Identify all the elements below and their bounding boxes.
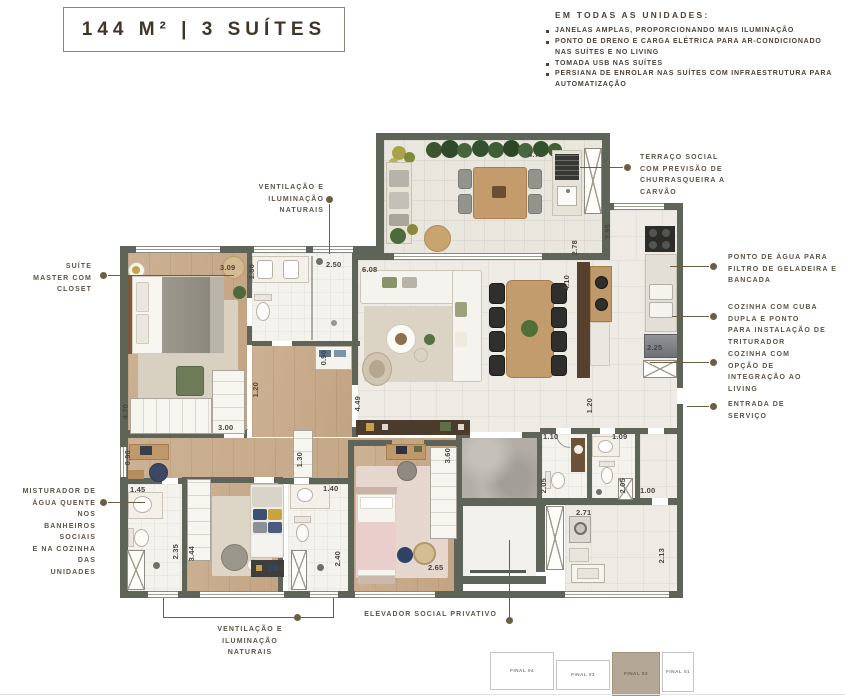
pillow (360, 497, 393, 509)
dimension-label: 2.13 (658, 548, 666, 563)
dimension-label: 2.50 (326, 261, 341, 269)
cabinet (569, 548, 589, 562)
dimension-label: 2.05 (619, 478, 627, 493)
page-baseline (0, 694, 845, 695)
plant-icon (424, 334, 435, 345)
desk-chair (149, 463, 168, 482)
window (200, 591, 284, 598)
pouf (413, 542, 436, 565)
mattress (252, 535, 282, 556)
wall (424, 440, 456, 446)
leader-line (108, 502, 145, 503)
dimension-label: 3.95 (604, 224, 612, 239)
window (310, 591, 338, 598)
callout-ponto-agua: PONTO DE ÁGUA PARA FILTRO DE GELADEIRA E… (728, 252, 840, 287)
leader-line (672, 316, 709, 317)
dimension-label: 4.49 (354, 396, 362, 411)
plant-icon (457, 143, 472, 158)
dimension-label: 3.60 (444, 448, 452, 463)
callout-dot (710, 403, 717, 410)
dimension-label: 1.09 (612, 433, 627, 441)
door-opening (247, 298, 252, 326)
keyplan-unit-final-02: FINAL 02 (612, 652, 660, 696)
dimension-label: 2.71 (576, 509, 591, 517)
window (148, 591, 178, 598)
pillow (268, 509, 282, 520)
laundry-basin (577, 568, 599, 579)
island-counter (590, 322, 610, 366)
dining-chair (489, 283, 505, 304)
sink (257, 260, 273, 279)
burner-icon (662, 229, 670, 237)
pillow (253, 522, 267, 533)
pouf (221, 544, 248, 571)
pillow (253, 509, 267, 520)
feature-item: PERSIANA DE ENROLAR NAS SUÍTES COM INFRA… (545, 69, 837, 91)
dimension-label: 1.30 (296, 452, 304, 467)
dining-chair (551, 331, 567, 352)
keyplan-unit-final-04: FINAL 04 (490, 652, 554, 690)
toilet (296, 524, 309, 542)
bench (176, 366, 204, 396)
console-decor (440, 422, 451, 431)
elevator-door-gap (470, 574, 526, 576)
burner-icon (662, 241, 670, 249)
dining-chair (489, 331, 505, 352)
armchair-cushion (369, 360, 385, 378)
shower-head-icon (596, 489, 602, 495)
callout-misturador: MISTURADOR DE ÁGUA QUENTE NOS BANHEIROS … (14, 486, 96, 578)
faucet-icon (566, 189, 570, 193)
side-table (414, 348, 428, 362)
dimension-label: 2.40 (334, 551, 342, 566)
shower-glass (311, 256, 313, 340)
bed-throw (210, 277, 224, 353)
dimension-label: 2.25 (647, 344, 662, 352)
dimension-label: 6.08 (362, 266, 377, 274)
table-decor (492, 186, 506, 198)
bench-cushion (389, 192, 409, 209)
shower-door-hatch (127, 550, 145, 590)
pillow (136, 282, 149, 312)
callout-dot (326, 196, 333, 203)
dimension-label: 2.35 (172, 544, 180, 559)
kitchen-sink (649, 302, 673, 318)
wall (352, 253, 394, 260)
wall (348, 440, 354, 592)
plant-icon (488, 142, 504, 158)
closet-wardrobe (130, 398, 212, 434)
window (565, 591, 669, 598)
pouf (397, 547, 413, 563)
shaft-hatch (584, 148, 602, 214)
dining-chair (489, 307, 505, 328)
leader-line (650, 362, 709, 363)
plant-icon (472, 140, 489, 157)
keyplan-unit-final-01: FINAL 01 (662, 652, 694, 692)
dimension-label: 3.09 (220, 264, 235, 272)
kitchen-sink (649, 284, 673, 300)
chair (528, 169, 542, 189)
leader-line (333, 598, 334, 618)
plant-icon (521, 320, 538, 337)
leader-line (108, 275, 234, 276)
callout-dot (710, 263, 717, 270)
shaft-hatch (546, 506, 564, 570)
dimension-label: 2.78 (571, 240, 579, 255)
feature-item: PONTO DE DRENO E CARGA ELÉTRICA PARA AR-… (545, 37, 837, 59)
pouf (424, 225, 451, 252)
plant-icon (407, 224, 418, 235)
dining-chair (551, 307, 567, 328)
elevator-cab (463, 506, 536, 576)
bench-cushion (389, 170, 409, 187)
burner-icon (595, 276, 608, 289)
shower-head-icon (317, 564, 324, 571)
leader-line (580, 167, 623, 168)
elevator-wall (536, 506, 545, 572)
lamp-icon (132, 266, 140, 274)
island-panel (577, 262, 590, 378)
dimension-label: 0.90 (320, 350, 328, 365)
callout-dot (100, 272, 107, 279)
door-opening (648, 428, 664, 434)
chair (458, 169, 472, 189)
service-entry-opening (677, 388, 683, 404)
callout-cozinha-living: COZINHA COM OPÇÃO DE INTEGRAÇÃO AO LIVIN… (728, 349, 838, 395)
callout-dot (710, 359, 717, 366)
leader-line (329, 204, 330, 254)
laptop-icon (140, 446, 152, 455)
keyplan-label: FINAL 04 (510, 669, 534, 674)
feature-item: TOMADA USB NAS SUÍTES (545, 59, 837, 70)
wall (602, 133, 610, 209)
dimension-label: 1.20 (252, 382, 260, 397)
door-opening (272, 341, 292, 346)
plant-icon (414, 446, 422, 452)
leader-line (670, 266, 709, 267)
washer-door-icon (574, 522, 587, 535)
leader-line (687, 406, 709, 407)
sink (283, 260, 299, 279)
toilet (551, 472, 565, 489)
towel (334, 350, 346, 357)
dimension-label: 0.90 (124, 450, 132, 465)
pillow (455, 332, 467, 347)
window (614, 203, 664, 210)
sink (297, 488, 313, 502)
dining-chair (551, 355, 567, 376)
console-decor (458, 424, 464, 430)
plant-icon (426, 142, 442, 158)
console-decor (382, 424, 388, 430)
callout-elevador: ELEVADOR SOCIAL PRIVATIVO (347, 609, 497, 621)
features-heading: EM TODAS AS UNIDADES: (555, 10, 837, 20)
leader-line (163, 617, 334, 618)
plan-title: 144 M² | 3 SUÍTES (63, 7, 345, 52)
dimension-label: 1.80 (248, 264, 256, 279)
toilet (256, 302, 270, 321)
keyplan: FINAL 04 FINAL 03 FINAL 02 FINAL 01 (488, 644, 688, 696)
dimension-label: 1.45 (130, 486, 145, 494)
shower-head-icon (316, 258, 323, 265)
dimension-label: 1.40 (323, 485, 338, 493)
leader-line (163, 598, 164, 618)
charcoal-grill (555, 154, 579, 180)
footboard (358, 576, 395, 584)
callout-ventilacao-top: VENTILAÇÃO E ILUMINAÇÃO NATURAIS (232, 182, 324, 217)
wall (677, 203, 683, 388)
dimension-label: 3.00 (218, 424, 233, 432)
pillow (268, 522, 282, 533)
laptop-icon (396, 446, 407, 454)
burner-icon (649, 241, 657, 249)
terrace-sliding-door (394, 253, 542, 260)
dimension-label: 3.44 (188, 546, 196, 561)
dimension-label: 2.05 (540, 478, 548, 493)
chair (528, 194, 542, 214)
window (136, 246, 220, 253)
bed-blanket (357, 522, 396, 570)
drain-icon (331, 320, 337, 326)
dimension-label: 1.10 (543, 433, 558, 441)
elevator-wall (454, 498, 546, 506)
sofa (452, 270, 482, 382)
sink (598, 440, 613, 453)
plant-icon (233, 286, 246, 299)
pillow (382, 277, 397, 288)
callout-dot (506, 617, 513, 624)
elevator-door (470, 570, 526, 573)
window (254, 246, 306, 253)
wall (376, 133, 610, 140)
toilet (601, 467, 613, 484)
callout-ventilacao-bottom: VENTILAÇÃO E ILUMINAÇÃO NATURAIS (204, 624, 296, 659)
feature-item: JANELAS AMPLAS, PROPORCIONANDO MAIS ILUM… (545, 26, 837, 37)
window (313, 246, 353, 253)
dimension-label: 4.70 (528, 151, 543, 159)
wall (677, 404, 683, 598)
burner-icon (649, 229, 657, 237)
sink (133, 496, 152, 513)
floorplan-page: 144 M² | 3 SUÍTES EM TODAS AS UNIDADES: … (0, 0, 845, 699)
callout-dot (624, 164, 631, 171)
headboard (356, 487, 397, 494)
toilet (134, 529, 149, 547)
keyplan-unit-final-03: FINAL 03 (556, 660, 610, 690)
callout-cozinha-cuba: COZINHA COM CUBA DUPLA E PONTO PARA INST… (728, 302, 840, 348)
console-decor (366, 423, 374, 431)
elevator-wall (454, 576, 546, 584)
sofa-cushion (252, 487, 282, 507)
door-opening (652, 498, 668, 505)
toilet-tank (294, 516, 311, 523)
wall (376, 133, 384, 260)
callout-terraco: TERRAÇO SOCIAL COM PREVISÃO DE CHURRASQU… (640, 152, 752, 198)
callout-dot (100, 499, 107, 506)
callout-dot (294, 614, 301, 621)
callout-suite-master: SUÍTE MASTER COM CLOSET (20, 261, 92, 296)
dimension-label: 1.20 (586, 398, 594, 413)
dining-chair (489, 355, 505, 376)
kitchen-island (590, 266, 612, 322)
callout-entrada-servico: ENTRADA DE SERVIÇO (728, 399, 818, 422)
dimension-label: 1.00 (640, 487, 655, 495)
desk-chair (397, 461, 417, 481)
window (355, 591, 435, 598)
vanity-counter (571, 438, 585, 472)
pillow (136, 314, 149, 344)
plant-icon (390, 228, 406, 244)
keyplan-label: FINAL 03 (571, 673, 595, 678)
keyplan-label: FINAL 02 (624, 672, 648, 677)
pillow (402, 277, 417, 288)
tray-icon (395, 333, 407, 345)
bench-decor (256, 565, 262, 571)
burner-icon (595, 298, 608, 311)
pillow (455, 302, 467, 317)
features-list: EM TODAS AS UNIDADES: JANELAS AMPLAS, PR… (545, 10, 837, 91)
dimension-label: 2.65 (428, 564, 443, 572)
shelf (128, 470, 144, 479)
toilet-tank (254, 294, 272, 301)
leader-line (509, 540, 510, 617)
callout-dot (710, 313, 717, 320)
bench-cushion (389, 214, 409, 226)
shower-door-hatch (291, 550, 307, 590)
dimension-label: 4.70 (122, 404, 130, 419)
dimension-label: 4.10 (563, 275, 571, 290)
sink (574, 445, 583, 454)
shower-head-icon (153, 562, 160, 569)
chair (458, 194, 472, 214)
keyplan-label: FINAL 01 (666, 670, 690, 675)
entrance-hall-floor (462, 438, 537, 502)
dimension-label: 2.55 (268, 565, 283, 573)
